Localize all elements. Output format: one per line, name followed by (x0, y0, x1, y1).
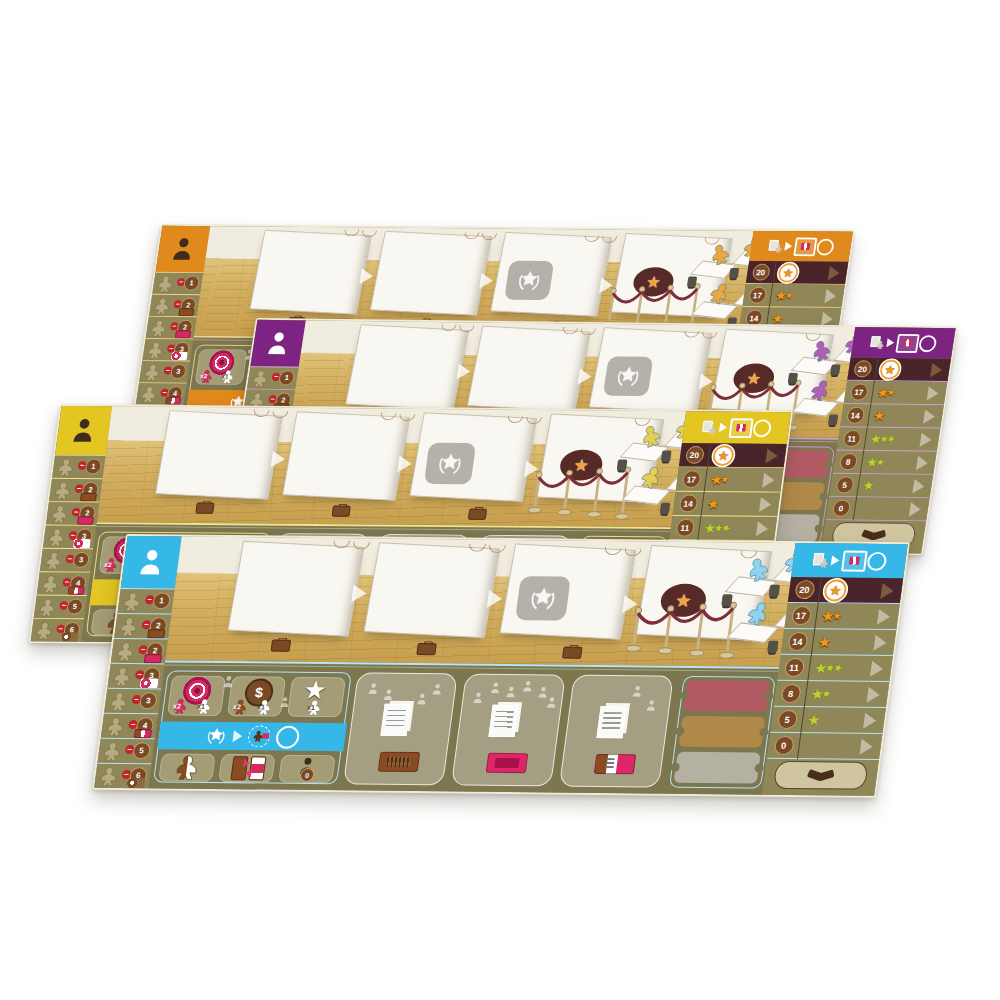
cards-meeple-icon (812, 553, 829, 567)
meeple-icon (117, 616, 140, 637)
ghost-figure-icon (643, 698, 658, 716)
brown-ticket-icon (147, 629, 165, 638)
score-badge: 8 (780, 684, 802, 703)
score-value: 8 (774, 684, 807, 703)
gallery-wall (282, 411, 410, 501)
star-icon: ★ (817, 634, 831, 650)
laurel-star-plaque (504, 261, 554, 300)
arrow-right-icon (867, 686, 881, 702)
score-value: 5 (830, 476, 859, 493)
laurel-star-icon (434, 449, 466, 477)
star-icon: ★ (831, 610, 843, 622)
score-badge: 5 (835, 476, 855, 493)
white-meeple-icon: x1 (220, 369, 236, 384)
arrow-right-icon (923, 409, 936, 423)
gray-ticket-slot (674, 752, 761, 784)
brown-ticket-icon (80, 493, 97, 502)
star-reward: ★★★ (808, 660, 872, 676)
office-chair-icon (729, 268, 739, 279)
laurel-star-icon (204, 725, 229, 747)
bench-icon (332, 505, 351, 516)
score-track-header (851, 327, 956, 359)
meeple-icon (34, 621, 55, 641)
score-value: 11 (837, 430, 866, 447)
bench-icon (195, 502, 214, 513)
score-badge: 11 (842, 430, 862, 447)
office-chair-icon (767, 641, 779, 653)
penalty-row: −6 (94, 763, 151, 789)
score-row: 11★★★ (669, 516, 777, 541)
penalty-badge: 1 (183, 276, 200, 291)
score-value: 17 (844, 383, 873, 400)
gallery-wall (155, 410, 283, 500)
score-badge: 14 (787, 632, 809, 651)
handshake-icon (807, 768, 835, 782)
pink-ticket-icon (77, 516, 94, 525)
score-row: 5★ (770, 707, 885, 734)
star-reward (799, 746, 861, 747)
score-value: 8 (833, 453, 862, 470)
arrow-right-icon (863, 712, 877, 728)
star-icon: ★ (720, 474, 732, 485)
ghost-figure-icon (503, 685, 518, 703)
score-row: 8★★ (774, 681, 889, 708)
coin-meeple-icon (61, 632, 79, 641)
score-rows: 20★17★★14★11★★★8★★5★0 (767, 577, 903, 760)
meeple-icon (250, 369, 271, 388)
ghost-figure-icon (414, 692, 429, 710)
meeple-icon (155, 274, 175, 293)
star-bonus-tile: ★ x1 (287, 677, 346, 718)
score-row: 0 (826, 497, 930, 521)
arrow-right-icon (930, 363, 943, 377)
gallery-wall (227, 541, 364, 637)
meeple-icon (55, 457, 76, 477)
arrow-right-icon (824, 289, 837, 303)
gallery-wall (467, 326, 591, 412)
arrow-right-icon (397, 456, 412, 473)
score-badge: 20 (751, 264, 770, 281)
bench-icon (271, 640, 292, 652)
ticket-slots-panel (669, 676, 776, 789)
score-row: 17★★ (742, 284, 845, 308)
handshake-space (773, 761, 869, 790)
striped-ticket-icon (594, 754, 637, 774)
penalty-row: −1 (117, 588, 174, 614)
laurel-star-icon (613, 363, 644, 390)
desk (726, 622, 779, 643)
score-value: 14 (781, 632, 814, 651)
target-meeple-icon (171, 352, 188, 361)
ring-icon (815, 238, 834, 255)
penalty-badge: 5 (132, 742, 151, 759)
split-meeple-icon (172, 754, 202, 781)
score-row: 17★★ (844, 381, 948, 405)
penalty-row: −3 (104, 688, 161, 714)
white-meeple-icon: x1 (195, 698, 213, 715)
brown-ticket-icon (378, 752, 421, 772)
framed-ticket-icon (728, 418, 753, 438)
penalty-row: −3 (139, 360, 190, 383)
ghost-figure-icon (277, 695, 291, 713)
star-icon: ★ (886, 387, 897, 398)
penalty-row: −4 (101, 713, 158, 739)
score-value: 11 (778, 658, 811, 677)
star-reward: ★ (818, 579, 883, 602)
office-chair-icon (721, 594, 733, 606)
arrow-right-icon (909, 502, 922, 516)
score-row: 17★★ (784, 603, 899, 630)
framed-ticket-icon (841, 550, 868, 571)
score-value: 14 (841, 407, 870, 424)
meeple-icon (152, 297, 172, 316)
penalty-badge: 5 (66, 599, 84, 615)
white-meeple-icon: x1 (255, 698, 273, 715)
exhibition-hall: ★ (97, 406, 686, 527)
tan-ticket-slot (678, 716, 765, 748)
arrow-right-icon (487, 590, 503, 608)
brown-meeple-icon: x2 (231, 698, 249, 715)
star-icon: ★ (784, 290, 795, 301)
gallery-wall (363, 542, 500, 638)
meeple-icon (149, 319, 169, 338)
person-icon (263, 330, 294, 357)
rosette-star-icon: ★ (823, 579, 848, 601)
pink-ticket-icon (175, 330, 191, 338)
cards-meeple-icon (701, 421, 717, 434)
ring-icon (866, 551, 888, 570)
player-color-banner (157, 721, 347, 751)
arrow-right-icon (762, 472, 775, 487)
office-chair-icon (617, 459, 628, 470)
brown-ticket-icon (178, 308, 194, 316)
ticket-exchange-tile (218, 754, 276, 783)
cards-meeple-icon (870, 336, 885, 349)
star-reward: ★ (701, 497, 761, 512)
ghost-figure-icon (629, 684, 644, 702)
score-value: 20 (788, 580, 821, 599)
arrow-right-icon (877, 608, 891, 624)
ticket-exchange-icon (228, 756, 267, 780)
person-icon (134, 547, 168, 577)
ghost-figure-icon (488, 681, 503, 699)
office-chair-icon (788, 373, 799, 384)
penalty-row: −1 (52, 454, 106, 478)
score-value: 17 (785, 606, 818, 625)
score-badge: 20 (794, 580, 816, 599)
person-icon (168, 236, 199, 263)
bench-icon (416, 643, 437, 655)
score-row: 14★ (840, 404, 944, 428)
penalty-badge: 1 (278, 370, 296, 385)
penalty-row: −2 (149, 294, 200, 317)
office-chair-icon (661, 450, 672, 461)
score-badge: 20 (684, 446, 704, 464)
score-badge: 11 (783, 658, 805, 677)
star-icon: ★ (707, 496, 720, 511)
meeple-icon (97, 766, 120, 787)
striped-ticket-icon (165, 397, 181, 405)
meeple-icon (121, 591, 144, 612)
laurel-star-plaque (515, 576, 571, 620)
score-badge: 0 (773, 736, 795, 755)
score-row: 20★ (788, 577, 903, 604)
score-badge: 17 (790, 606, 812, 625)
score-row: 11★★★ (777, 655, 892, 682)
penalty-row: −2 (146, 316, 197, 339)
arrow-right-icon (886, 338, 895, 347)
score-badge: 17 (681, 470, 701, 488)
star-reward (854, 508, 909, 509)
gallery-area: ★ (148, 537, 796, 795)
player-board-blue: −1−2−2−3−3−4−5−6 (92, 534, 910, 798)
star-reward: ★★ (815, 608, 879, 624)
penalty-badge: 3 (170, 364, 187, 379)
player-color-square (156, 226, 211, 272)
penalty-badge: 1 (152, 592, 171, 609)
star-reward: ★★ (704, 472, 764, 487)
target-meeple-icon (139, 678, 158, 688)
star-reward: ★★ (770, 289, 827, 303)
score-row: 5★ (829, 474, 933, 498)
pink-ticket-icon (486, 753, 529, 773)
star-reward: ★★★ (864, 432, 922, 446)
star-icon: ★ (862, 478, 875, 493)
score-row: 11★★★ (836, 427, 940, 451)
score-badge: 17 (748, 287, 767, 304)
laurel-star-icon (526, 583, 560, 613)
document-icon (380, 704, 410, 736)
star-reward: ★★ (805, 686, 869, 702)
player-color-square (121, 536, 182, 588)
arrow-right-icon (456, 363, 471, 379)
score-value: 14 (673, 494, 703, 512)
score-row: 14★ (672, 492, 780, 517)
office-chair-icon (660, 503, 671, 514)
penalty-row: −4 (136, 382, 187, 405)
arrow-right-icon (860, 738, 874, 754)
score-value: 20 (746, 264, 775, 281)
meeple-icon (46, 527, 67, 547)
gallery-wall (249, 230, 371, 315)
count-badge: 0 (299, 768, 315, 782)
penalty-row: −2 (111, 638, 168, 664)
penalty-row: −5 (97, 738, 154, 764)
ghost-figure-icon (520, 679, 535, 697)
score-value: 0 (826, 500, 855, 517)
player-color-square (55, 406, 112, 455)
score-badge: 5 (776, 710, 798, 729)
bonus-tiles-panel: x2 x1 $ x2 (153, 670, 352, 784)
star-reward: ★ (812, 634, 876, 650)
action-panel: x2 x1 $ x2 (148, 660, 779, 794)
score-value: 20 (679, 446, 709, 464)
meeple-icon (107, 691, 130, 712)
score-row: 8★★ (833, 450, 937, 474)
penalty-row: −3 (40, 548, 94, 572)
ghost-figure-icon (429, 682, 444, 700)
player-color-square (250, 320, 305, 367)
score-row: 20★ (746, 261, 849, 285)
score-badge: 11 (675, 519, 695, 537)
star-reward: ★★★ (698, 521, 758, 536)
striped-ticket-icon (134, 729, 152, 738)
score-track-header (791, 543, 908, 578)
ghost-figure-icon (220, 674, 237, 693)
star-icon: ★ (875, 457, 886, 468)
star-reward: ★ (874, 359, 932, 379)
office-chair-icon (769, 585, 781, 597)
penalty-row: −3 (142, 338, 193, 361)
target-meeple-icon (73, 539, 91, 548)
star-reward: ★ (801, 712, 865, 728)
penalty-row: −6 (31, 618, 85, 642)
ring-icon (917, 335, 937, 352)
pink-meeple-icon: x2 (171, 698, 189, 715)
exhibit-card-slot (559, 675, 674, 788)
arrow-right-icon (821, 312, 834, 326)
arrow-right-icon (351, 584, 367, 602)
penalty-row: −1 (152, 272, 203, 295)
target-bonus-tile: x2 x1 (195, 349, 248, 385)
office-chair-icon (830, 364, 841, 375)
exhibition-hall: ★ (165, 537, 795, 667)
penalty-badge: 3 (139, 692, 158, 709)
star-icon: ★ (873, 408, 886, 423)
circle-icon (275, 725, 301, 748)
penalty-row: −2 (49, 478, 103, 502)
coin-meeple-icon (126, 778, 145, 788)
rosette-star-icon: ★ (712, 445, 735, 466)
arrow-right-icon (359, 268, 374, 284)
score-badge: 20 (853, 360, 873, 377)
meeple-icon (40, 574, 61, 594)
score-badge: 14 (678, 495, 698, 513)
meeple-icon (145, 341, 165, 360)
person-icon (68, 416, 100, 444)
meeple-icon (104, 716, 127, 737)
arrow-right-icon (912, 479, 925, 493)
split-meeple-tile (158, 753, 216, 782)
arrow-right-icon (756, 521, 769, 536)
arrow-right-icon (578, 369, 593, 385)
arrow-right-icon (719, 423, 728, 432)
penalty-row: −3 (107, 663, 164, 689)
laurel-star-plaque (424, 443, 476, 485)
laurel-star-plaque (603, 356, 654, 396)
pink-meeple-icon: x2 (198, 369, 214, 384)
white-meeple-icon: x1 (305, 699, 323, 716)
gallery-wall (370, 231, 492, 316)
star-reward: ★★ (871, 386, 929, 400)
star-reward: ★ (766, 312, 823, 326)
star-reward: ★ (857, 478, 915, 492)
penalty-row: −5 (34, 595, 88, 619)
score-value: 17 (743, 287, 772, 304)
score-badge: 17 (849, 383, 869, 400)
arrow-right-icon (830, 555, 839, 565)
striped-ticket-icon (68, 586, 85, 595)
exhibit-card-slot (451, 674, 566, 787)
ghost-figure-icon (544, 695, 559, 713)
arrow-right-icon (927, 386, 940, 400)
pink-meeple-icon: x2 (102, 557, 119, 573)
score-row: 20★ (847, 357, 951, 381)
star-icon: ★ (807, 712, 821, 728)
ring-icon (752, 419, 772, 437)
ghost-figure-icon (365, 682, 380, 700)
laurel-star-icon (514, 267, 545, 294)
arrow-right-icon (916, 455, 929, 469)
bench-icon (562, 647, 583, 659)
target-bonus-tile: x2 x1 (167, 675, 226, 716)
rosette-star-icon: ★ (879, 359, 902, 379)
arrow-right-icon (232, 730, 243, 742)
meeple-icon (142, 363, 162, 382)
arrow-right-icon (479, 273, 494, 289)
star-reward: ★ (868, 409, 926, 423)
penalty-badge: 1 (84, 458, 102, 474)
arrow-right-icon (870, 660, 884, 676)
meeple-icon (111, 666, 134, 687)
meeple-icon (49, 504, 70, 524)
penalty-row: −2 (46, 501, 100, 525)
score-value: 11 (670, 519, 700, 537)
document-icon (488, 705, 518, 737)
star-icon: ★ (821, 688, 833, 700)
framed-ticket-icon (895, 333, 919, 352)
score-row: 17★★ (676, 467, 784, 492)
framed-ticket-icon (793, 237, 817, 256)
score-value: 0 (767, 736, 800, 755)
pink-ticket-icon (144, 654, 162, 663)
penalty-row: −4 (37, 571, 91, 595)
arrow-right-icon (759, 497, 772, 512)
office-chair-icon (687, 276, 697, 287)
score-row: 0 (767, 733, 882, 760)
office-chair-icon (828, 415, 839, 426)
rosette-star-icon: ★ (777, 263, 799, 283)
score-track-header (749, 231, 853, 262)
document-icon (596, 706, 626, 738)
arrow-right-icon (828, 266, 841, 280)
star-reward: ★ (773, 263, 831, 283)
gallery-wall (345, 324, 469, 410)
score-badge: 0 (831, 500, 851, 517)
meeple-icon (114, 641, 137, 662)
score-value: 5 (771, 710, 804, 729)
score-track-header (682, 411, 791, 444)
score-badge: 14 (845, 407, 865, 424)
arrow-right-icon (880, 582, 894, 598)
score-value: 20 (848, 360, 877, 377)
star-reward: ★ (707, 445, 768, 466)
arrow-right-icon (271, 451, 286, 468)
arrow-right-icon (784, 242, 792, 251)
dashed-circle-meeple-ticket-icon (247, 725, 272, 747)
penalty-row: −2 (114, 613, 171, 639)
score-badge: 8 (838, 453, 858, 470)
meeple-icon (37, 597, 58, 617)
meeple-icon (139, 385, 159, 404)
arrow-right-icon (765, 448, 778, 463)
visitor-count-tile: 0 (278, 755, 336, 784)
cards-meeple-icon (768, 240, 783, 252)
bench-icon (468, 509, 487, 520)
ghost-figure-icon (470, 691, 485, 709)
meeple-icon (101, 741, 124, 762)
score-row: 20★ (679, 443, 787, 468)
